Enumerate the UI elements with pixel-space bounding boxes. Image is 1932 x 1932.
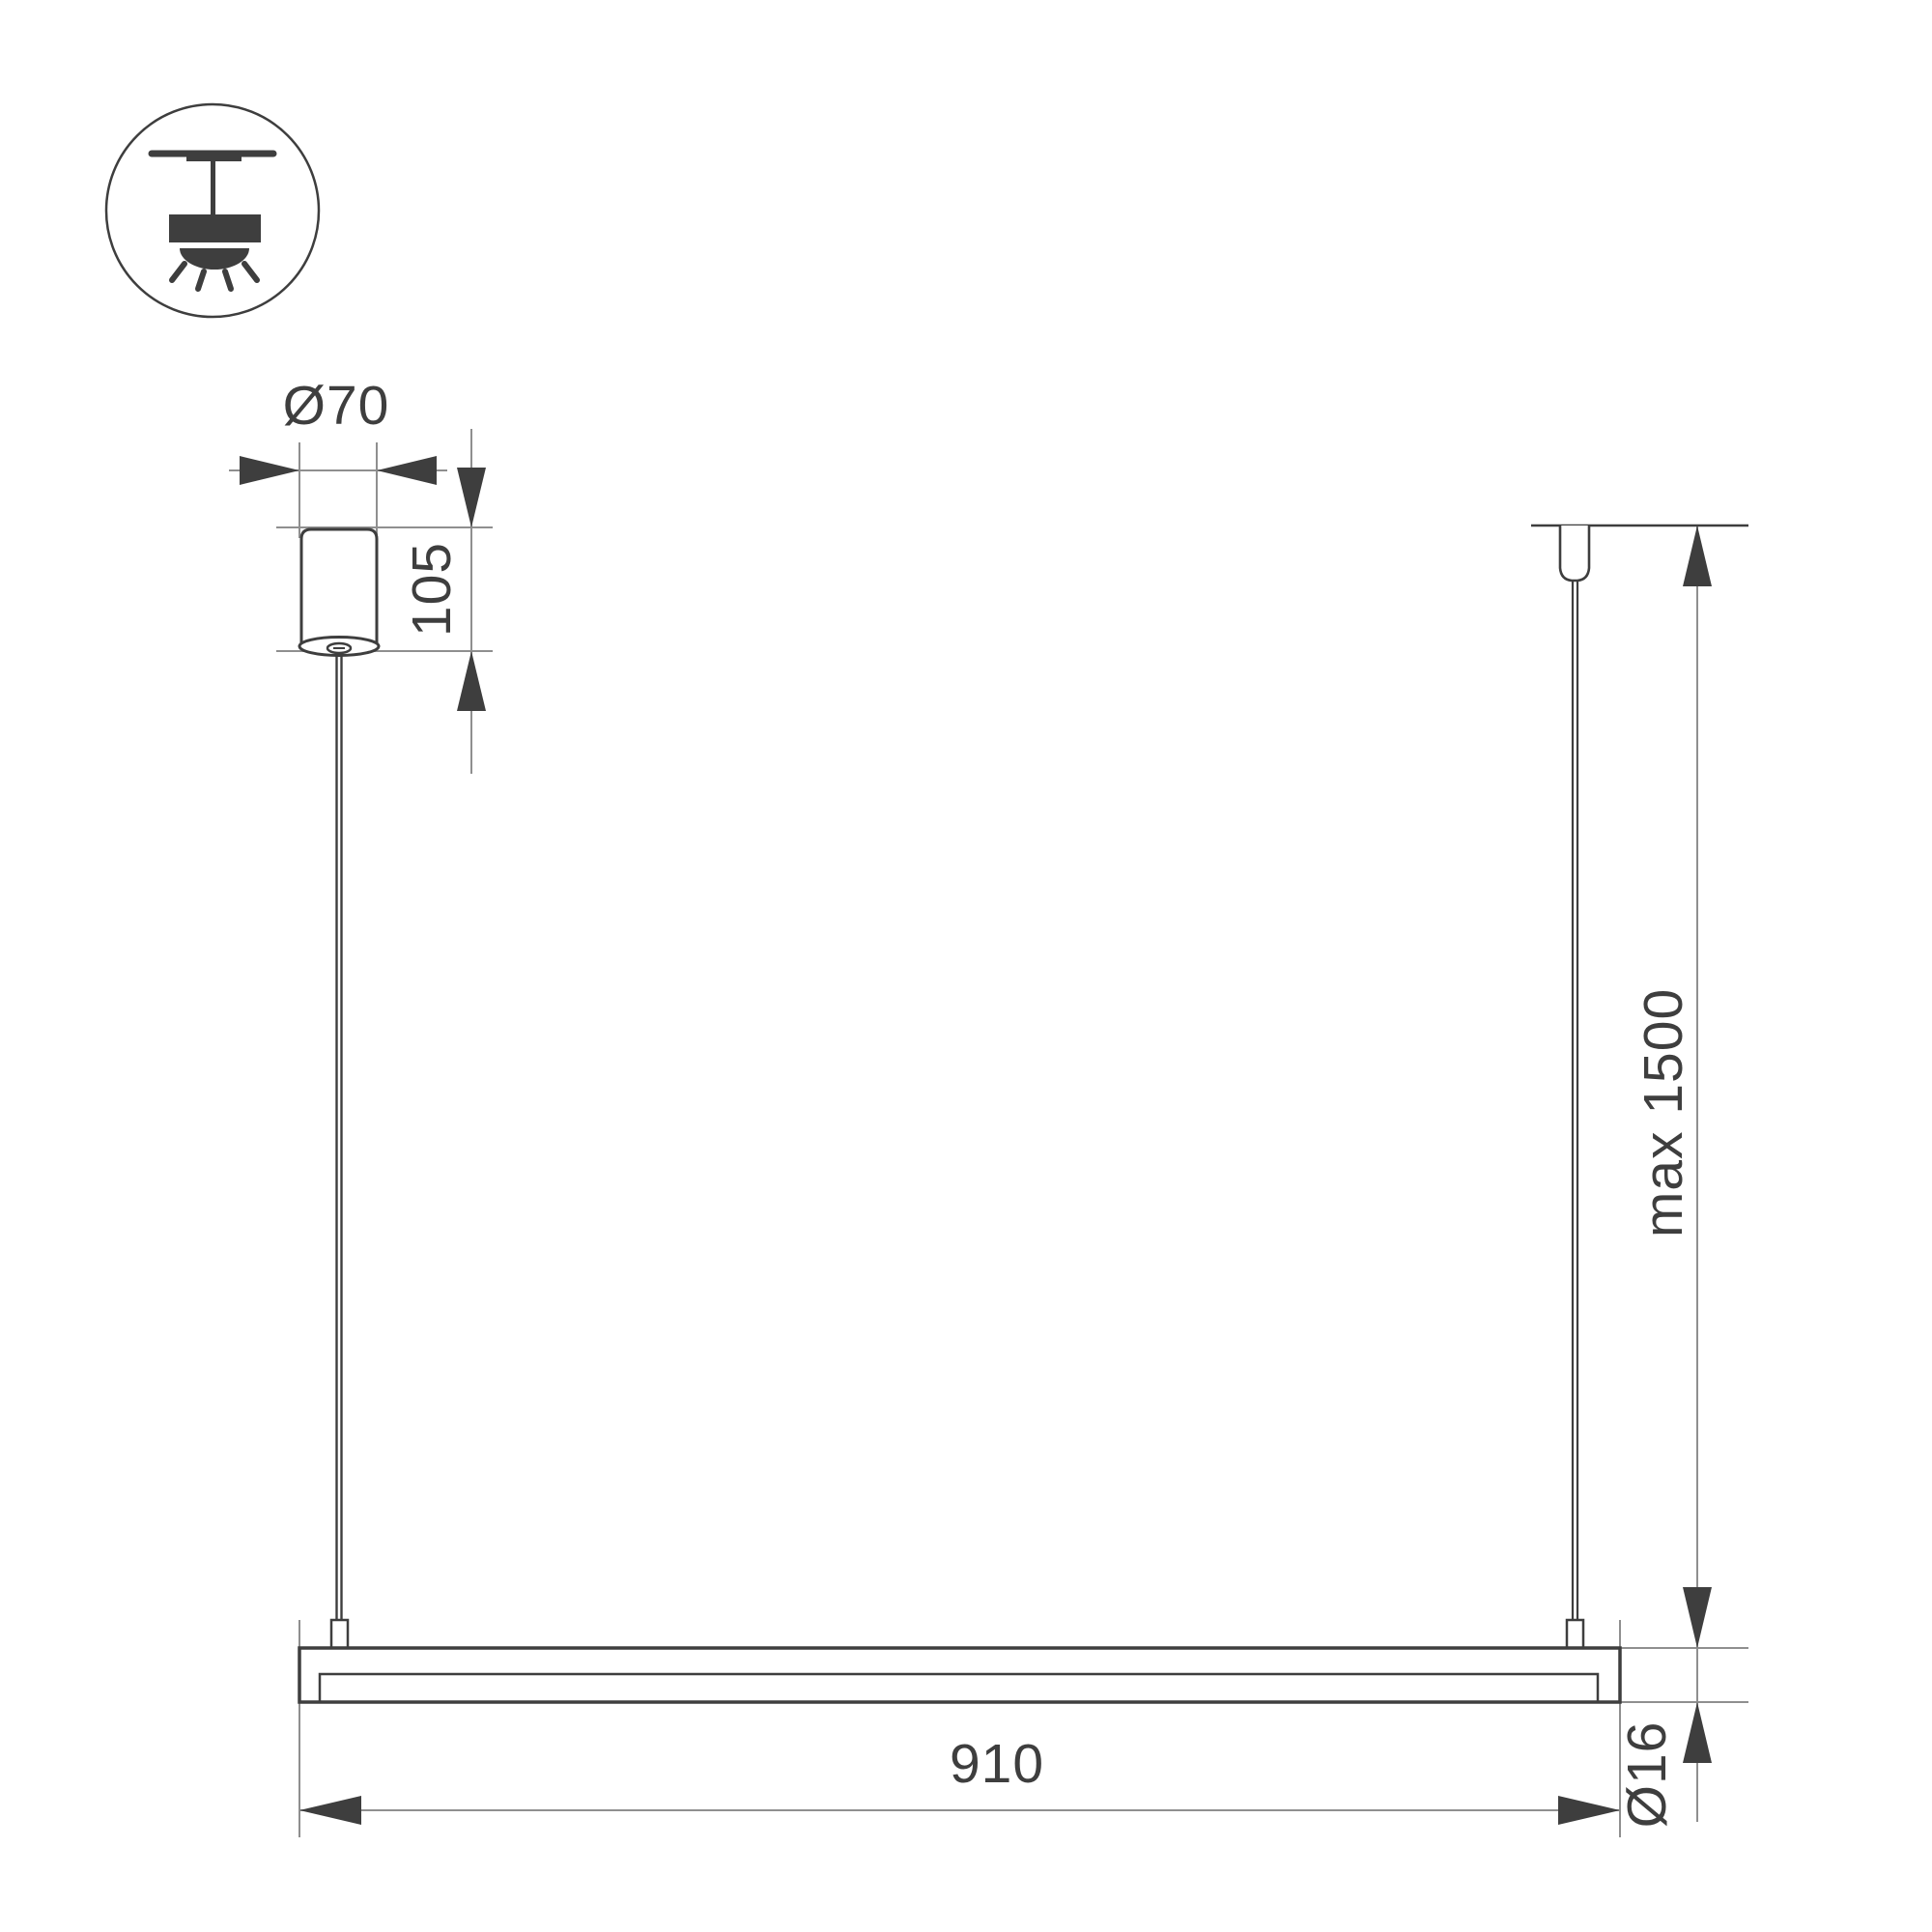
label-max-suspension: max 1500 (1633, 988, 1694, 1237)
wire-grip-right (1567, 1620, 1583, 1649)
arrow-up-icon (1683, 526, 1712, 586)
extension-lines (229, 429, 1748, 1837)
icon-lamp-body (169, 214, 261, 242)
arrow-up-icon (457, 651, 486, 711)
icon-suspension-rod (211, 156, 215, 216)
label-profile-diameter: Ø16 (1616, 1721, 1678, 1829)
mount-type-icon (106, 104, 319, 317)
arrow-down-icon (1683, 1587, 1712, 1648)
label-canopy-diameter: Ø70 (283, 375, 390, 437)
technical-drawing-page: Ø70 105 max 1500 910 Ø16 (0, 0, 1932, 1932)
arrow-right-icon (1558, 1796, 1620, 1825)
dimension-labels: Ø70 105 max 1500 910 Ø16 (283, 375, 1694, 1828)
canopy-right (1560, 526, 1589, 581)
arrow-down-icon (457, 468, 486, 527)
fixture-bar (299, 1620, 1620, 1702)
wire-grip-left (331, 1620, 348, 1649)
label-fixture-length: 910 (950, 1733, 1044, 1795)
suspension-left (299, 529, 379, 1623)
arrow-left-icon (299, 1796, 361, 1825)
label-canopy-height: 105 (401, 542, 463, 637)
arrow-right-icon (240, 456, 299, 485)
dimension-arrows (240, 456, 1712, 1825)
canopy-body (301, 529, 377, 645)
arrow-left-icon (377, 456, 437, 485)
pendant-luminaire-dimension-drawing: Ø70 105 max 1500 910 Ø16 (0, 0, 1932, 1932)
arrow-up-icon (1683, 1702, 1712, 1763)
icon-lamp-shade (180, 248, 249, 270)
